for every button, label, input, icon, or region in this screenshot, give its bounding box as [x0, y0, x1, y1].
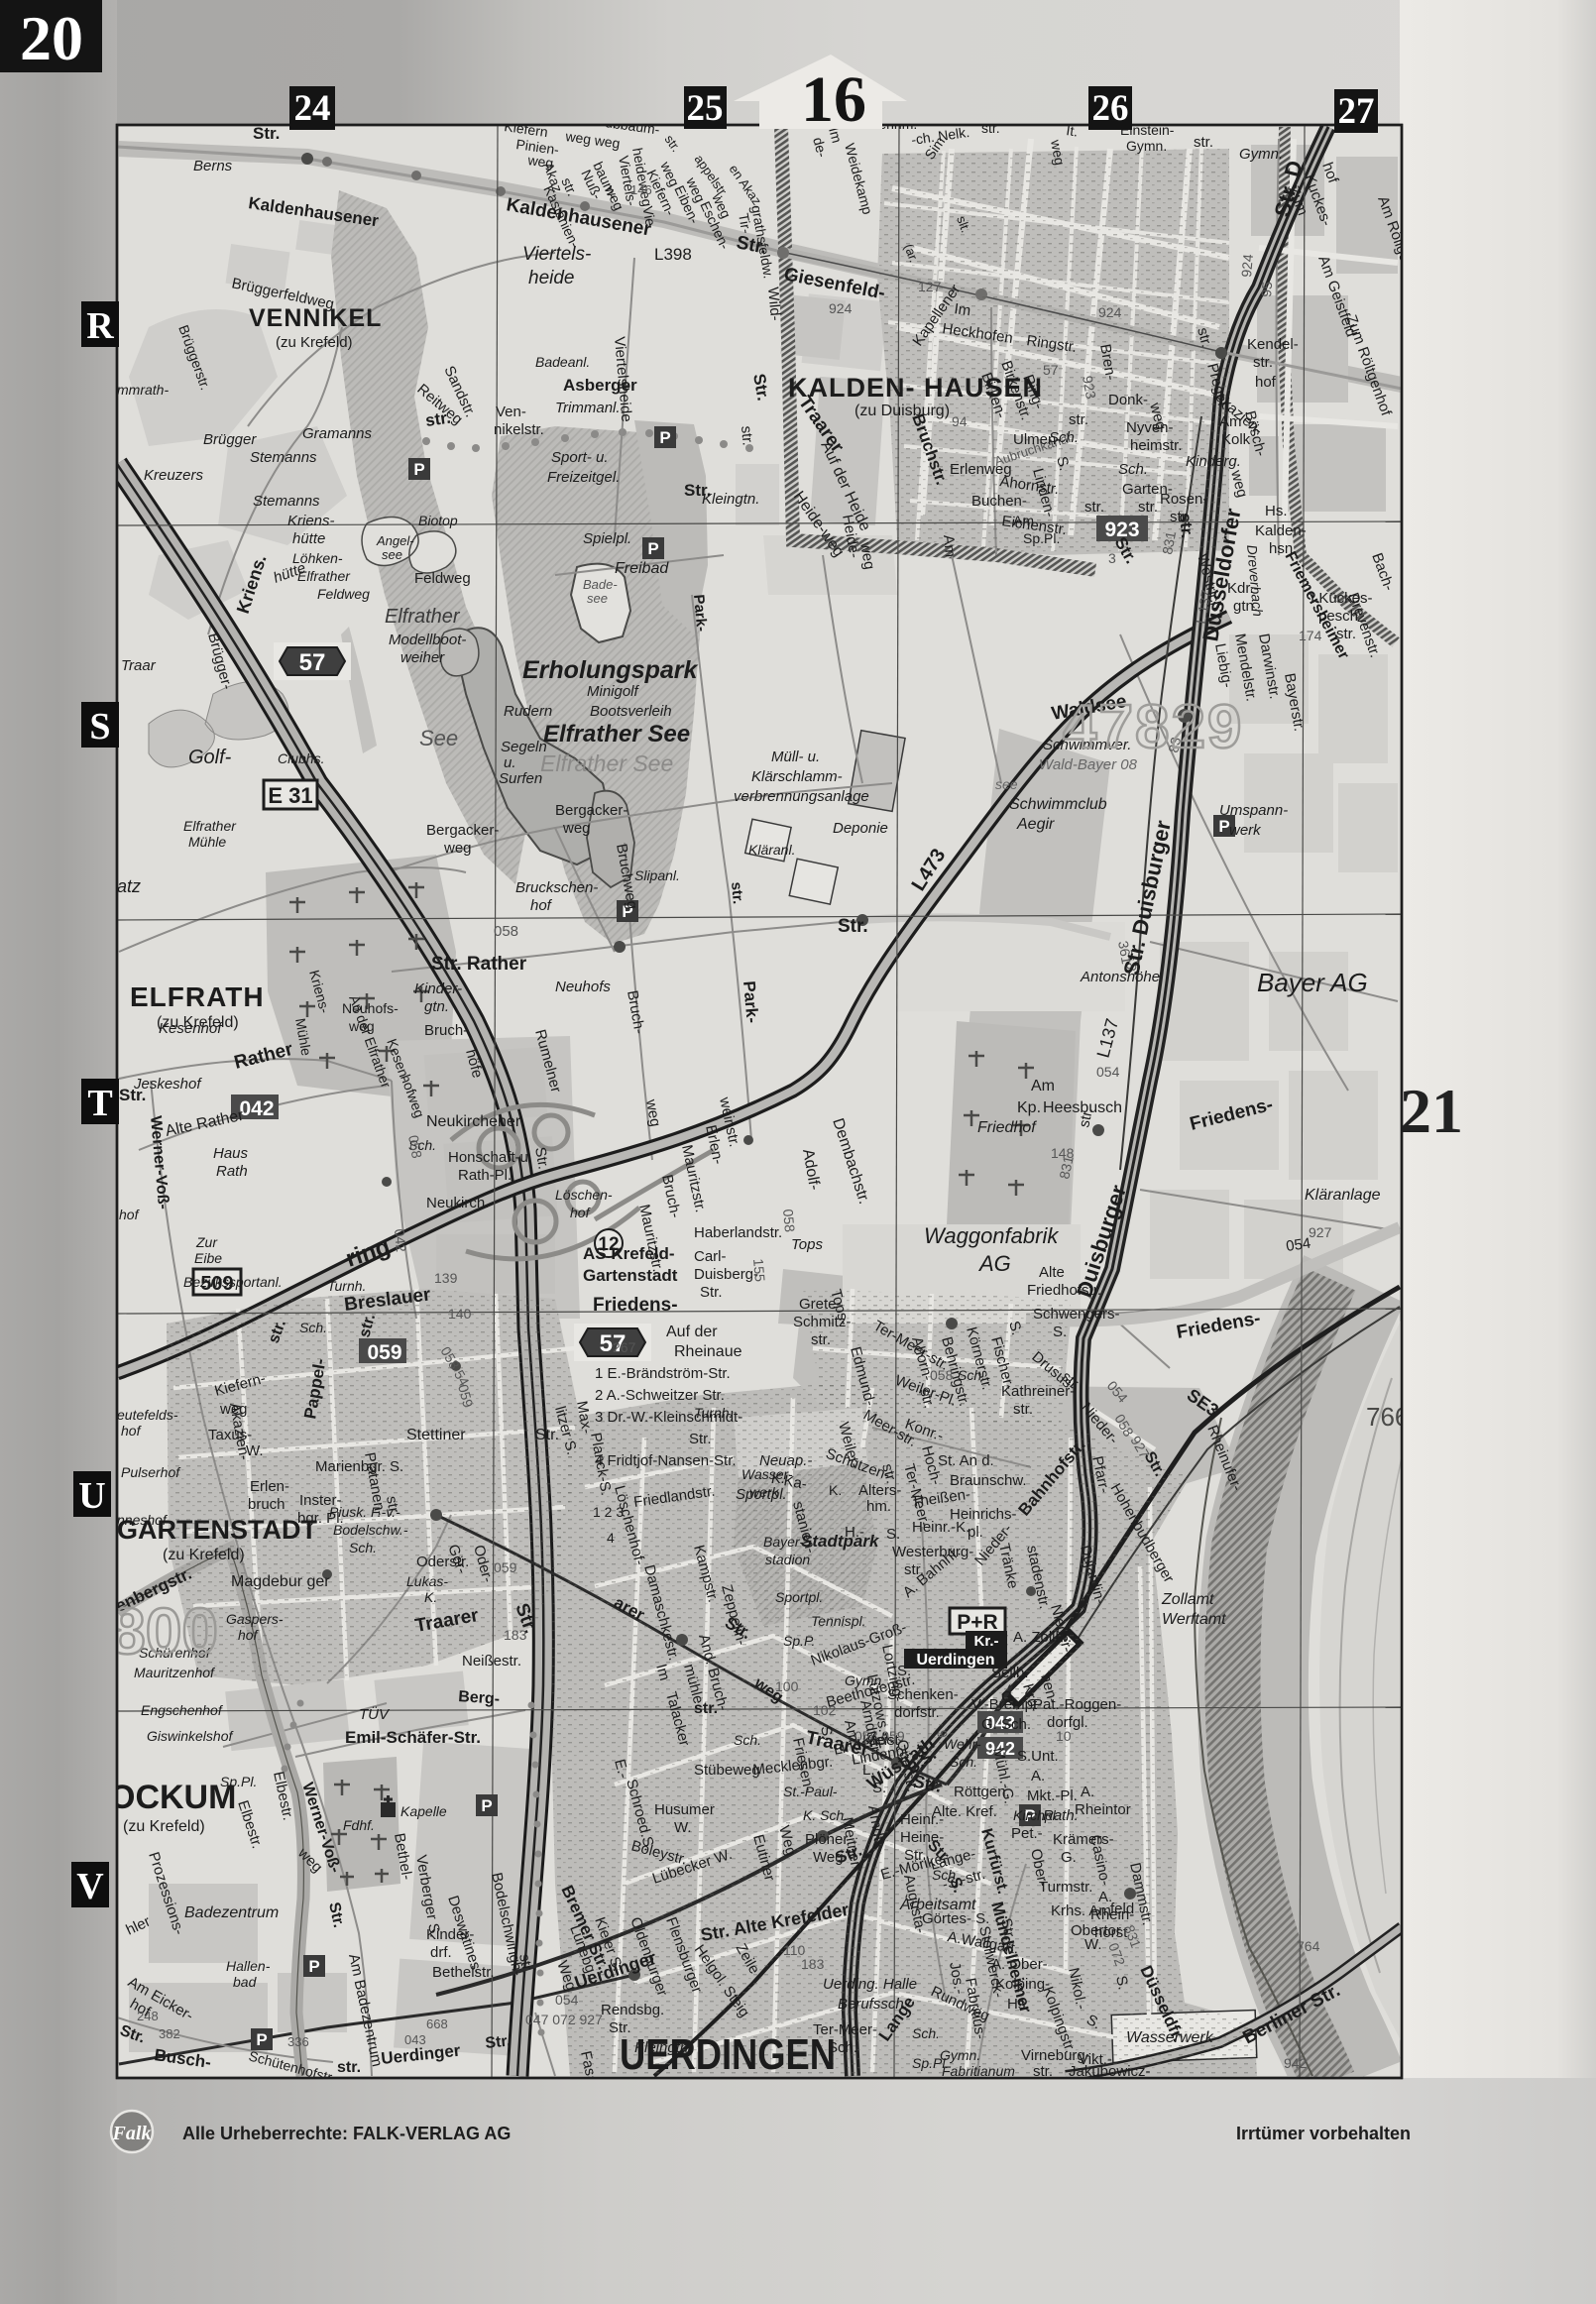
- svg-text:Zollamt: Zollamt: [1161, 1591, 1214, 1608]
- svg-text:S: S: [89, 706, 110, 748]
- svg-text:Gramanns: Gramanns: [302, 425, 373, 442]
- svg-text:Spielpl.: Spielpl.: [583, 530, 631, 547]
- svg-text:Kläranlage: Kläranlage: [1305, 1187, 1381, 1204]
- svg-text:E 31: E 31: [268, 783, 312, 808]
- svg-text:Turnh.: Turnh.: [694, 1405, 733, 1421]
- svg-text:weg: weg: [348, 1018, 375, 1034]
- svg-text:Duisberg-: Duisberg-: [694, 1266, 758, 1283]
- svg-text:Neuhofs: Neuhofs: [555, 979, 611, 995]
- svg-text:Tennispl.: Tennispl.: [811, 1613, 866, 1629]
- svg-text:Kreuzers: Kreuzers: [144, 467, 204, 484]
- svg-text:Neuap.-: Neuap.-: [759, 1452, 812, 1469]
- svg-text:Gaspers-: Gaspers-: [226, 1611, 284, 1627]
- svg-text:(zu Krefeld): (zu Krefeld): [163, 1547, 245, 1563]
- svg-text:Müll- u.: Müll- u.: [771, 749, 820, 765]
- svg-text:Alte. Kref.: Alte. Kref.: [932, 1803, 997, 1820]
- svg-text:P: P: [413, 460, 424, 479]
- svg-text:bruch: bruch: [248, 1496, 285, 1513]
- svg-text:57: 57: [1043, 362, 1059, 378]
- svg-text:Kdr.-: Kdr.-: [1227, 580, 1259, 597]
- svg-text:25: 25: [687, 88, 724, 129]
- svg-text:2 A.-Schweitzer Str.: 2 A.-Schweitzer Str.: [595, 1387, 725, 1404]
- svg-text:Elfrather: Elfrather: [183, 818, 237, 834]
- svg-text:Honschaft-u.: Honschaft-u.: [448, 1149, 532, 1166]
- svg-text:Kathreiner-: Kathreiner-: [1001, 1383, 1075, 1400]
- svg-text:see: see: [995, 776, 1018, 792]
- svg-text:Alle Urheberrechte: FALK-VERLA: Alle Urheberrechte: FALK-VERLAG AG: [182, 2124, 511, 2143]
- svg-text:Elfrather: Elfrather: [297, 568, 351, 584]
- svg-text:U: U: [78, 1475, 105, 1517]
- svg-text:Berns: Berns: [193, 158, 233, 174]
- svg-text:054: 054: [555, 1992, 579, 2008]
- svg-text:hof: hof: [238, 1627, 260, 1643]
- svg-text:Str.: Str.: [119, 1086, 146, 1104]
- svg-text:Rheintor: Rheintor: [1075, 1801, 1131, 1818]
- svg-text:24: 24: [294, 88, 331, 129]
- svg-text:Kinderg.: Kinderg.: [1186, 453, 1241, 470]
- svg-text:139: 139: [434, 1270, 458, 1286]
- svg-text:ELFRATH: ELFRATH: [130, 981, 265, 1012]
- svg-text:str.: str.: [1194, 134, 1213, 151]
- svg-text:Giswinkelshof: Giswinkelshof: [147, 1728, 234, 1744]
- svg-text:058: 058: [930, 1367, 954, 1383]
- svg-text:Rosen-: Rosen-: [1160, 491, 1207, 508]
- svg-text:S.: S.: [897, 1663, 911, 1679]
- svg-text:058: 058: [780, 1209, 798, 1233]
- svg-text:str.: str.: [1253, 354, 1273, 371]
- svg-text:Str.: Str.: [485, 2032, 512, 2052]
- svg-text:TÜV: TÜV: [359, 1705, 391, 1723]
- svg-text:Berg-: Berg-: [458, 1688, 501, 1708]
- svg-text:Engschenhof: Engschenhof: [141, 1702, 224, 1718]
- svg-text:Löhken-: Löhken-: [292, 550, 343, 566]
- svg-text:P+R: P+R: [957, 1611, 997, 1634]
- svg-text:Neukirch.: Neukirch.: [426, 1195, 489, 1211]
- svg-text:042: 042: [239, 1097, 274, 1120]
- svg-text:(zu Duisburg): (zu Duisburg): [855, 403, 950, 419]
- svg-text:043: 043: [404, 2032, 426, 2047]
- svg-text:Pet.-: Pet.-: [1011, 1825, 1043, 1842]
- svg-text:924: 924: [1238, 253, 1256, 278]
- svg-text:weg: weg: [443, 840, 472, 857]
- svg-text:hof: hof: [1255, 374, 1277, 391]
- svg-text:S.: S.: [886, 1526, 900, 1543]
- svg-text:Carl-: Carl-: [694, 1248, 727, 1265]
- svg-text:Friedhof: Friedhof: [977, 1119, 1037, 1136]
- svg-text:(zu Krefeld): (zu Krefeld): [276, 334, 353, 351]
- svg-text:Haus: Haus: [213, 1145, 249, 1162]
- svg-text:Stettiner: Stettiner: [406, 1427, 466, 1443]
- svg-text:382: 382: [159, 2026, 180, 2041]
- svg-text:str.: str.: [1013, 1401, 1033, 1418]
- svg-text:u.: u.: [504, 754, 516, 771]
- svg-text:P: P: [256, 2030, 267, 2049]
- svg-text:Donk-: Donk-: [1108, 392, 1148, 408]
- svg-text:Kleingtn.: Kleingtn.: [702, 491, 759, 508]
- svg-text:St. An d.: St. An d.: [938, 1452, 994, 1469]
- svg-text:W.: W.: [674, 1819, 692, 1836]
- svg-text:V: V: [76, 1866, 104, 1907]
- svg-text:054: 054: [1096, 1064, 1120, 1080]
- svg-text:hsn.: hsn.: [1269, 540, 1297, 557]
- svg-text:1 E.-Brändström-Str.: 1 E.-Brändström-Str.: [595, 1365, 731, 1382]
- svg-text:Hs.: Hs.: [1265, 503, 1288, 519]
- svg-text:Kläranl.: Kläranl.: [748, 842, 795, 858]
- svg-text:weg: weg: [562, 820, 591, 837]
- svg-text:Kp.: Kp.: [1017, 1099, 1041, 1116]
- svg-text:Klärschlamm-: Klärschlamm-: [751, 768, 843, 785]
- svg-text:Pat.-Roggen-: Pat.-Roggen-: [1033, 1696, 1121, 1713]
- svg-text:Kendel-: Kendel-: [1247, 336, 1299, 353]
- svg-text:Str.: Str.: [535, 1427, 559, 1443]
- svg-text:weiher: weiher: [400, 649, 445, 666]
- svg-text:Trimmanl.: Trimmanl.: [555, 400, 621, 416]
- svg-text:Auf der: Auf der: [666, 1324, 718, 1340]
- svg-text:47829: 47829: [1063, 693, 1243, 761]
- svg-text:668: 668: [426, 2016, 448, 2031]
- svg-text:047 072 927: 047 072 927: [525, 2012, 603, 2027]
- svg-text:(zu Krefeld): (zu Krefeld): [123, 1818, 205, 1835]
- svg-text:Im: Im: [953, 300, 971, 319]
- svg-text:Rath: Rath: [216, 1163, 248, 1180]
- svg-text:S.: S.: [1053, 1324, 1067, 1340]
- svg-text:Elfrather: Elfrather: [385, 606, 461, 628]
- svg-text:148: 148: [1051, 1145, 1075, 1161]
- svg-text:Kinder-: Kinder-: [414, 980, 462, 997]
- svg-text:Sp.Pl.: Sp.Pl.: [220, 1774, 257, 1789]
- svg-text:atz: atz: [117, 876, 141, 896]
- svg-text:Löschen-: Löschen-: [555, 1187, 613, 1203]
- svg-text:Neißestr.: Neißestr.: [462, 1653, 521, 1670]
- svg-text:336: 336: [287, 2034, 309, 2049]
- svg-text:Bezirkssportanl.: Bezirkssportanl.: [183, 1274, 283, 1290]
- svg-text:Golf-: Golf-: [188, 747, 232, 768]
- svg-text:Feldweg: Feldweg: [414, 570, 471, 587]
- svg-text:Sch.: Sch.: [1049, 429, 1079, 446]
- svg-text:Fdhf.: Fdhf.: [343, 1817, 375, 1833]
- svg-text:100: 100: [775, 1678, 799, 1694]
- svg-text:Kriens-: Kriens-: [287, 513, 335, 529]
- svg-text:Elfrather See: Elfrather See: [543, 721, 690, 748]
- svg-text:G. Sch.: G. Sch.: [981, 1716, 1031, 1733]
- svg-text:see: see: [382, 547, 402, 562]
- svg-text:Umspann-: Umspann-: [1219, 802, 1288, 819]
- svg-text:Emil-Schäfer-Str.: Emil-Schäfer-Str.: [345, 1728, 481, 1747]
- svg-text:Mkt.-Pl.: Mkt.-Pl.: [1027, 1787, 1078, 1804]
- svg-text:Turmstr.: Turmstr.: [1039, 1879, 1092, 1896]
- svg-text:Modellboot-: Modellboot-: [389, 632, 466, 648]
- svg-text:A.: A.: [1081, 1784, 1094, 1800]
- svg-text:27: 27: [1338, 91, 1375, 132]
- svg-text:Neukirchener: Neukirchener: [426, 1113, 521, 1130]
- svg-text:OCKUM: OCKUM: [109, 1779, 236, 1816]
- svg-text:T: T: [87, 1083, 112, 1124]
- svg-text:str.: str.: [1138, 499, 1158, 516]
- svg-text:Alte: Alte: [1039, 1264, 1065, 1281]
- svg-text:See: See: [419, 726, 458, 750]
- svg-text:57: 57: [299, 649, 326, 676]
- svg-text:042: 042: [392, 1228, 409, 1253]
- svg-text:Bruch-: Bruch-: [424, 1022, 468, 1039]
- svg-text:Clubhs.: Clubhs.: [278, 750, 324, 766]
- svg-text:Hs.: Hs.: [1007, 1996, 1030, 2013]
- svg-text:V.-Brempt-: V.-Brempt-: [971, 1696, 1042, 1713]
- svg-text:Alters-: Alters-: [858, 1482, 901, 1499]
- svg-text:058: 058: [494, 923, 518, 940]
- svg-text:Schwimmclub: Schwimmclub: [1009, 796, 1107, 813]
- svg-text:Wehr-: Wehr-: [944, 1736, 981, 1752]
- svg-text:Segeln: Segeln: [501, 739, 547, 755]
- svg-text:Aegir: Aegir: [1016, 816, 1055, 833]
- svg-text:Surfen: Surfen: [499, 770, 542, 787]
- svg-text:Stemanns: Stemanns: [253, 493, 320, 510]
- svg-text:Sch.: Sch.: [299, 1320, 327, 1335]
- svg-text:942: 942: [1284, 2055, 1308, 2071]
- svg-text:Rudern: Rudern: [504, 703, 552, 720]
- svg-text:Sch.: Sch.: [349, 1540, 377, 1555]
- svg-text:Gymn.: Gymn.: [1126, 138, 1167, 154]
- svg-text:hof: hof: [121, 1423, 143, 1439]
- svg-text:Tops: Tops: [791, 1236, 823, 1253]
- svg-text:hof: hof: [570, 1205, 592, 1220]
- svg-text:hof: hof: [119, 1207, 141, 1222]
- svg-text:A. Zollhf.: A. Zollhf.: [1013, 1629, 1072, 1646]
- svg-text:95: 95: [1258, 281, 1275, 297]
- svg-text:Mühle: Mühle: [188, 834, 226, 850]
- svg-text:Inster-: Inster-: [299, 1492, 342, 1509]
- svg-text:Stübeweg: Stübeweg: [694, 1762, 760, 1779]
- svg-text:Neuhofs-: Neuhofs-: [342, 1000, 399, 1016]
- svg-text:Str. Rather: Str. Rather: [431, 954, 527, 975]
- svg-text:146: 146: [630, 182, 652, 197]
- svg-text:927: 927: [1309, 1224, 1332, 1240]
- svg-text:pl.: pl.: [968, 1524, 983, 1541]
- svg-text:str.: str.: [738, 425, 756, 446]
- svg-text:102: 102: [813, 1702, 837, 1718]
- svg-text:Str.: Str.: [609, 2019, 631, 2036]
- svg-text:Rheinaue: Rheinaue: [674, 1343, 742, 1360]
- svg-text:Str.: Str.: [838, 916, 868, 937]
- svg-text:Werftamt: Werftamt: [1162, 1611, 1226, 1628]
- svg-text:G.: G.: [1061, 1849, 1077, 1866]
- svg-text:Buchen-: Buchen-: [971, 493, 1027, 510]
- svg-text:Uerding. Halle: Uerding. Halle: [823, 1976, 917, 1993]
- svg-text:Park-: Park-: [740, 980, 762, 1024]
- svg-text:248: 248: [137, 2009, 159, 2023]
- svg-text:Bootsverleih: Bootsverleih: [590, 703, 672, 720]
- svg-text:Sch.: Sch.: [734, 1732, 761, 1748]
- svg-text:nikelstr.: nikelstr.: [494, 421, 544, 438]
- svg-text:str.: str.: [424, 408, 452, 430]
- svg-text:Feldweg: Feldweg: [317, 586, 370, 602]
- svg-text:Erlen-: Erlen-: [250, 1478, 289, 1495]
- svg-text:P: P: [1218, 817, 1229, 836]
- svg-text:054: 054: [1285, 1235, 1311, 1255]
- svg-text:Seilb.: Seilb.: [991, 1665, 1029, 1681]
- svg-text:Freizeitgel.: Freizeitgel.: [547, 469, 620, 486]
- svg-text:059: 059: [367, 1341, 401, 1364]
- svg-text:Magdebur ger: Magdebur ger: [231, 1573, 330, 1590]
- svg-text:mmrath-: mmrath-: [117, 382, 169, 398]
- svg-text:Bade-: Bade-: [583, 577, 618, 592]
- svg-text:Irrtümer vorbehalten: Irrtümer vorbehalten: [1236, 2124, 1411, 2143]
- svg-text:Krämers-: Krämers-: [1053, 1831, 1114, 1848]
- svg-text:Heinr.-K.: Heinr.-K.: [912, 1519, 969, 1536]
- svg-text:str.: str.: [337, 2059, 361, 2076]
- svg-text:Erholungspark: Erholungspark: [522, 656, 699, 684]
- svg-text:feld: feld: [1110, 1901, 1134, 1917]
- svg-text:Deponie: Deponie: [833, 820, 888, 837]
- svg-text:Park-: Park-: [690, 594, 710, 633]
- svg-text:Bodelschw.-: Bodelschw.-: [333, 1522, 408, 1538]
- svg-text:Brügger: Brügger: [203, 431, 257, 448]
- svg-text:str.: str.: [728, 881, 746, 905]
- svg-text:Bergacker-: Bergacker-: [555, 802, 627, 819]
- svg-text:str.: str.: [1069, 411, 1088, 428]
- svg-text:4 Fridtjof-Nansen-Str.: 4 Fridtjof-Nansen-Str.: [595, 1452, 737, 1469]
- svg-text:Schenken-: Schenken-: [887, 1686, 959, 1703]
- svg-text:R: R: [86, 305, 114, 347]
- svg-text:P: P: [481, 1796, 492, 1815]
- svg-text:dorfstr.: dorfstr.: [894, 1704, 940, 1721]
- svg-text:Hallen-: Hallen-: [226, 1958, 271, 1974]
- svg-text:Eibe: Eibe: [194, 1250, 222, 1266]
- svg-text:Traar: Traar: [121, 657, 157, 674]
- svg-text:P: P: [308, 1957, 319, 1976]
- svg-text:10: 10: [1056, 1728, 1072, 1744]
- svg-text:str.: str.: [1176, 513, 1197, 539]
- svg-text:Kr.-: Kr.-: [973, 1633, 998, 1650]
- svg-text:Friedens-: Friedens-: [593, 1295, 678, 1316]
- svg-text:4: 4: [607, 1530, 615, 1546]
- svg-text:Sportpl.: Sportpl.: [775, 1589, 823, 1605]
- svg-text:H.-: H.-: [845, 1524, 864, 1541]
- svg-text:Kalden-: Kalden-: [1255, 522, 1307, 539]
- svg-text:Freibad: Freibad: [615, 560, 669, 577]
- svg-text:Waggonfabrik: Waggonfabrik: [924, 1223, 1059, 1248]
- svg-text:A. Ober-: A. Ober-: [991, 1956, 1048, 1973]
- svg-text:174: 174: [1299, 628, 1322, 643]
- svg-text:Kolk: Kolk: [1221, 431, 1251, 448]
- svg-text:K.: K.: [829, 1482, 842, 1498]
- svg-text:Kapelle: Kapelle: [400, 1803, 447, 1819]
- svg-text:21: 21: [1400, 1076, 1463, 1146]
- svg-text:Schwengers-: Schwengers-: [1033, 1306, 1120, 1323]
- svg-text:bad: bad: [233, 1974, 258, 1990]
- svg-text:140: 140: [448, 1306, 472, 1322]
- svg-text:Ter-Meer-: Ter-Meer-: [813, 2021, 877, 2038]
- svg-text:Fabritianum: Fabritianum: [942, 2063, 1015, 2079]
- svg-text:str.: str.: [904, 1561, 924, 1578]
- svg-text:Kleingtn.: Kleingtn.: [634, 2039, 692, 2056]
- svg-text:Ven-: Ven-: [496, 403, 526, 420]
- svg-text:Falk: Falk: [112, 2123, 152, 2144]
- svg-text:Badezentrum: Badezentrum: [184, 1904, 279, 1921]
- svg-text:Husumer: Husumer: [654, 1801, 715, 1818]
- svg-text:str.: str.: [694, 1700, 718, 1717]
- svg-text:16: 16: [801, 63, 866, 136]
- svg-text:Turnh.: Turnh.: [327, 1278, 366, 1294]
- svg-text:Elfrather See: Elfrather See: [540, 750, 673, 776]
- svg-text:Görtes- S.: Görtes- S.: [922, 1910, 989, 1927]
- svg-text:str.: str.: [1336, 626, 1356, 642]
- svg-text:Sp.P.: Sp.P.: [783, 1633, 815, 1649]
- svg-text:Badeanl.: Badeanl.: [535, 354, 590, 370]
- svg-text:gtn.: gtn.: [424, 998, 449, 1015]
- svg-text:hm.: hm.: [866, 1498, 891, 1515]
- svg-text:Zur: Zur: [195, 1234, 218, 1250]
- svg-text:drf.: drf.: [430, 1944, 452, 1961]
- svg-text:Asberger: Asberger: [563, 376, 637, 395]
- svg-text:94: 94: [952, 413, 968, 429]
- svg-text:3: 3: [1108, 550, 1116, 566]
- svg-text:Am: Am: [1031, 1078, 1055, 1094]
- svg-text:gtn.: gtn.: [1233, 598, 1258, 615]
- svg-text:P: P: [659, 428, 670, 447]
- svg-text:W.: W.: [1084, 1936, 1102, 1953]
- svg-text:924: 924: [1098, 304, 1122, 320]
- svg-text:verbrennungsanlage: verbrennungsanlage: [734, 788, 869, 805]
- svg-text:924: 924: [829, 300, 853, 316]
- svg-text:Viertels-: Viertels-: [522, 244, 591, 265]
- svg-text:Pulserhof: Pulserhof: [121, 1464, 181, 1480]
- svg-text:764: 764: [1297, 1938, 1320, 1954]
- svg-text:Sch.: Sch.: [1118, 461, 1148, 478]
- svg-text:Bayer AG: Bayer AG: [1257, 968, 1368, 997]
- svg-text:Str.: Str.: [253, 124, 280, 143]
- svg-text:A.: A.: [1031, 1768, 1045, 1785]
- svg-text:L398: L398: [654, 245, 692, 264]
- svg-text:Sch.: Sch.: [912, 2025, 940, 2041]
- svg-text:Slipanl.: Slipanl.: [634, 867, 680, 883]
- svg-text:Kesenhof: Kesenhof: [159, 1020, 223, 1037]
- svg-text:nneshof: nneshof: [117, 1512, 169, 1528]
- svg-text:Heesbusch: Heesbusch: [1043, 1099, 1122, 1116]
- svg-text:Am: Am: [940, 534, 959, 558]
- svg-text:Marienbgr. S.: Marienbgr. S.: [315, 1458, 403, 1475]
- svg-text:1 2 3: 1 2 3: [593, 1504, 624, 1520]
- svg-text:hof: hof: [530, 897, 553, 914]
- svg-text:183: 183: [801, 1956, 825, 1972]
- svg-text:str.: str.: [811, 1331, 831, 1348]
- svg-text:20: 20: [20, 3, 83, 73]
- svg-text:werk: werk: [1229, 822, 1262, 839]
- svg-text:267: 267: [613, 1339, 636, 1355]
- svg-text:S.Unt.: S.Unt.: [1017, 1748, 1059, 1765]
- svg-text:Str.: Str.: [700, 1284, 723, 1301]
- svg-text:Rath.: Rath.: [1043, 1807, 1079, 1824]
- svg-text:Bruckschen-: Bruckschen-: [515, 879, 598, 896]
- svg-text:Bergacker-: Bergacker-: [426, 822, 499, 839]
- svg-text:Sch.: Sch.: [950, 1754, 977, 1770]
- svg-text:800: 800: [109, 1594, 218, 1668]
- svg-text:Lukas-: Lukas-: [406, 1573, 448, 1589]
- svg-text:Rendsbg.: Rendsbg.: [601, 2002, 664, 2018]
- svg-text:bgr. Pl.: bgr. Pl.: [297, 1510, 344, 1527]
- svg-text:110: 110: [783, 1942, 806, 1958]
- svg-text:Sch.: Sch.: [828, 2039, 857, 2056]
- svg-text:Gymn.: Gymn.: [940, 2047, 980, 2063]
- svg-text:059: 059: [494, 1559, 517, 1575]
- svg-text:K.: K.: [771, 1470, 785, 1487]
- svg-text:see: see: [587, 591, 608, 606]
- svg-text:183: 183: [504, 1627, 527, 1643]
- svg-text:Gymn.: Gymn.: [1239, 146, 1283, 163]
- svg-text:26: 26: [1092, 88, 1129, 129]
- svg-text:Angel-: Angel-: [376, 533, 414, 548]
- svg-text:Sport- u.: Sport- u.: [551, 449, 609, 466]
- svg-text:eutefelds-: eutefelds-: [117, 1407, 178, 1423]
